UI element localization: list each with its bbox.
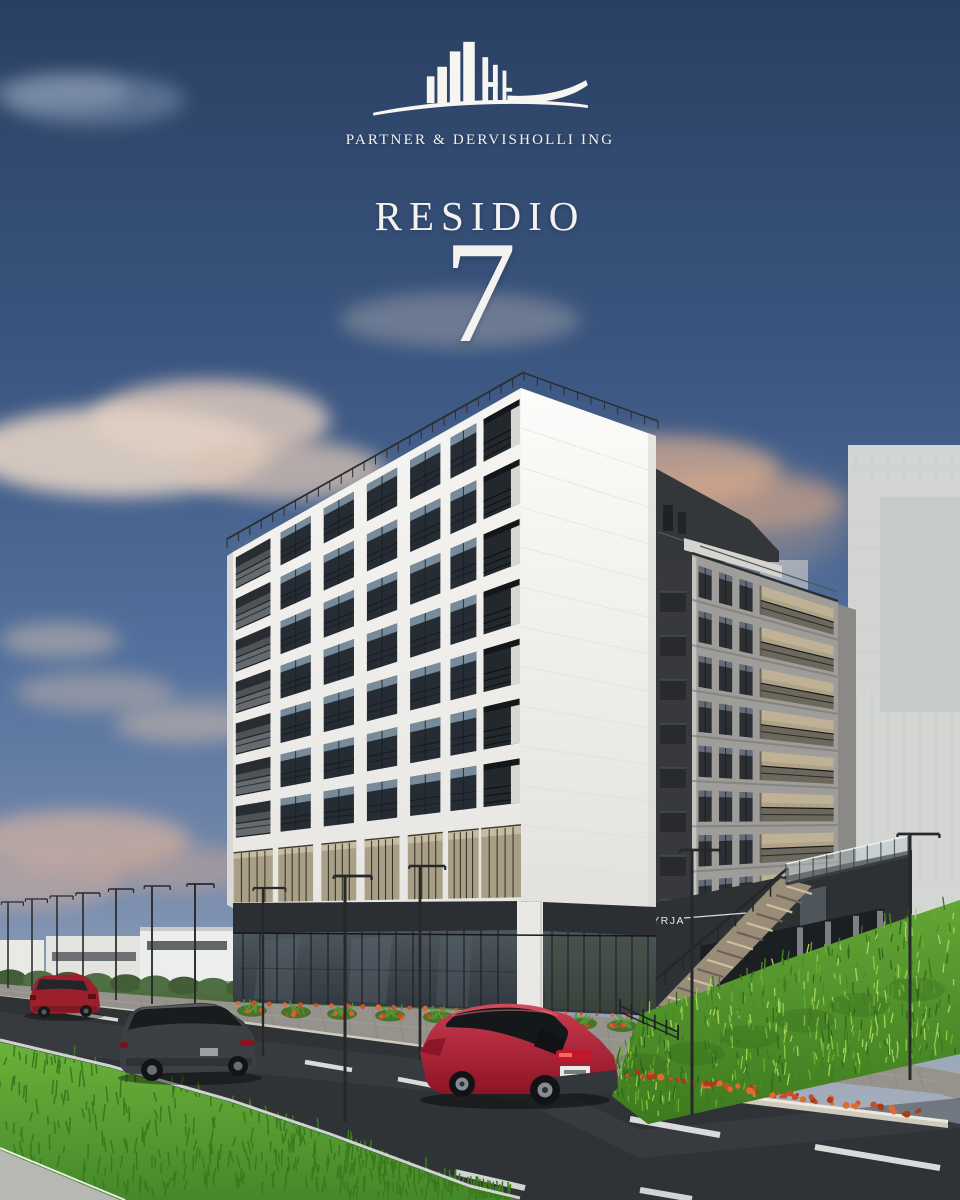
residio-poster: HYRJA [0, 0, 960, 1200]
render-scene: HYRJA [0, 0, 960, 1200]
storefront [233, 901, 656, 1016]
